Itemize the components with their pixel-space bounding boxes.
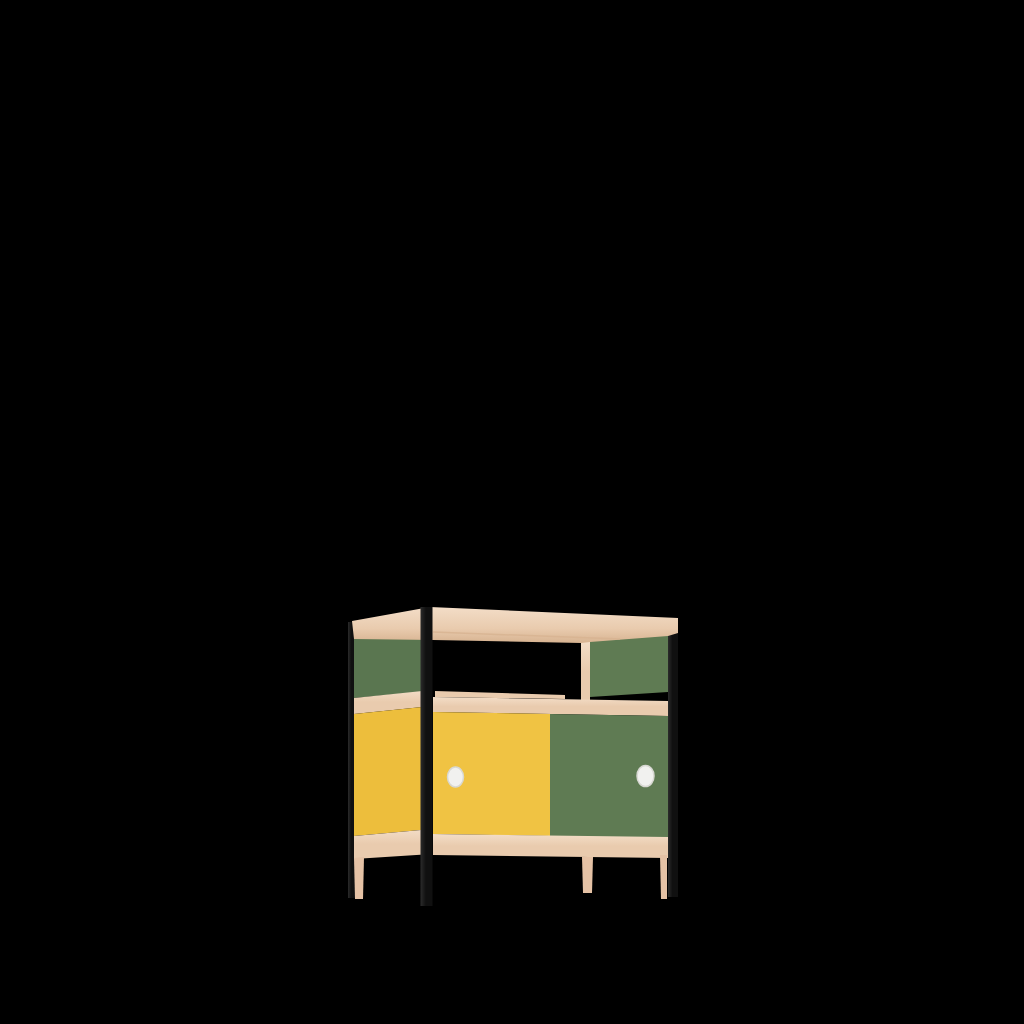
front-rail-bottom [433,834,668,858]
side-panel-yellow [354,706,432,836]
knob-yellow-door [448,767,464,787]
background [0,0,1024,1024]
right-wood-leg [660,855,667,899]
sideboard-render [0,0,1024,1024]
knob-green-door [637,766,654,787]
shelf-back-panel-green [590,635,668,697]
shelf-divider [581,641,590,702]
render-canvas [0,0,1024,1024]
middle-wood-leg [582,857,593,893]
rear-left-leg [348,622,355,898]
rear-right-leg [668,633,678,897]
front-left-wood-leg [354,857,364,899]
side-panel-green [354,630,432,698]
front-left-leg [421,607,433,906]
